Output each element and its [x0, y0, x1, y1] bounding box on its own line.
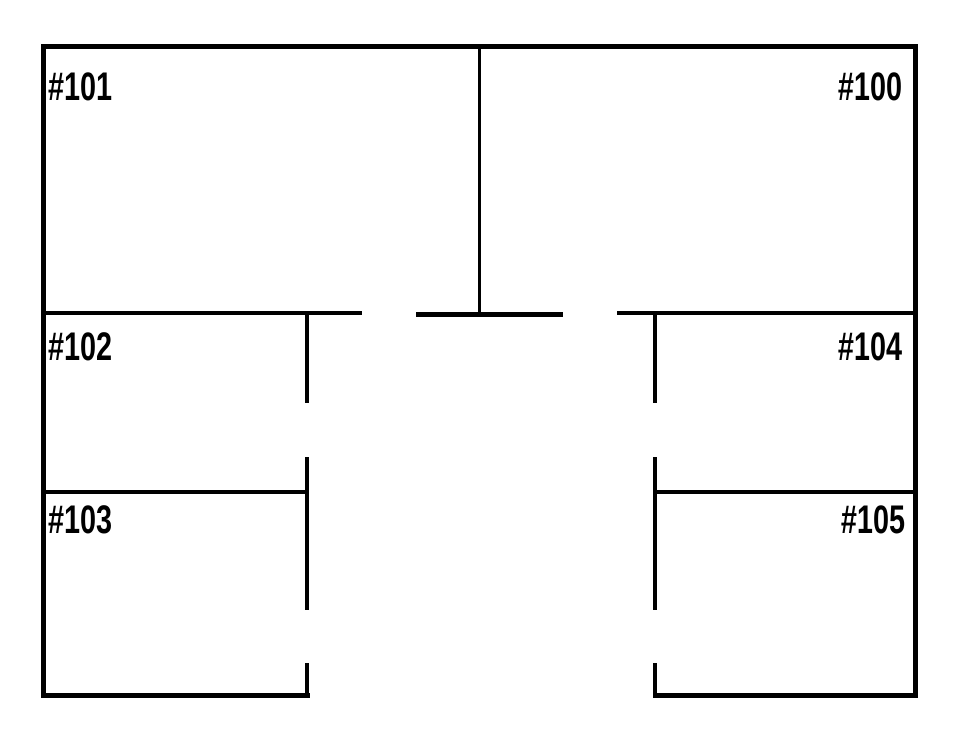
wall-center-stub — [416, 312, 563, 317]
wall-outer-right — [913, 44, 918, 698]
wall-left-hallway-upper — [305, 313, 309, 403]
wall-left-hallway-middle — [305, 457, 309, 610]
room-label-105: #105 — [841, 500, 905, 540]
floor-plan-canvas: #101 #100 #102 #104 #103 #105 — [0, 0, 960, 742]
wall-divider-room102-room103 — [46, 490, 307, 494]
wall-outer-bottom-left — [41, 693, 310, 698]
wall-room101-bottom — [46, 311, 362, 315]
room-label-101: #101 — [48, 67, 112, 107]
wall-outer-bottom-right — [653, 693, 918, 698]
wall-right-hallway-middle — [653, 457, 657, 610]
wall-room100-bottom — [617, 311, 913, 315]
room-label-104: #104 — [838, 327, 902, 367]
wall-outer-left — [41, 44, 46, 698]
room-label-103: #103 — [48, 500, 112, 540]
wall-right-hallway-upper — [653, 313, 657, 403]
wall-left-hallway-lower — [305, 663, 309, 698]
wall-divider-room104-room105 — [655, 490, 913, 494]
wall-right-hallway-lower — [653, 663, 657, 698]
room-label-102: #102 — [48, 327, 112, 367]
wall-divider-room101-room100 — [478, 49, 481, 315]
room-label-100: #100 — [838, 67, 902, 107]
